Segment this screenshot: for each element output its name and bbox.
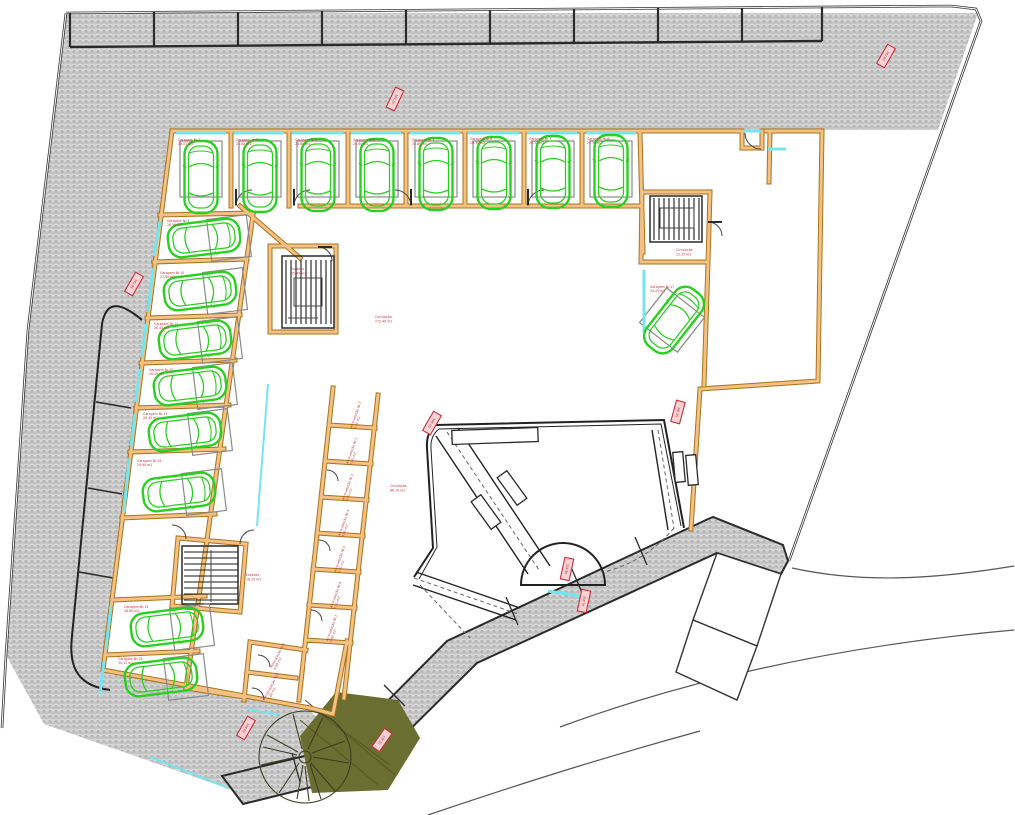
area-label: 26.50 m2 (167, 223, 182, 227)
car-icon (593, 135, 629, 207)
area-label: 24.80 m2 (295, 142, 310, 146)
car-icon (242, 140, 278, 212)
room-label: Circulação (390, 484, 407, 488)
room-label: Circulação (676, 248, 693, 252)
car-icon (141, 470, 217, 515)
car-icon (638, 281, 711, 360)
area-label: 30.15 m2 (118, 661, 133, 665)
floor-plan-page: Garagem Nr.1 25.07 m2 Garagem Nr.2 24.80… (0, 0, 1015, 815)
area-label: 27.80 m2 (160, 275, 175, 279)
area-label: 15.40 m2 (291, 272, 306, 276)
area-label: 26.45 m2 (143, 416, 158, 420)
basement-parking-plan: Garagem Nr.1 25.07 m2 Garagem Nr.2 24.80… (0, 0, 1015, 815)
area-label: 16.20 m2 (246, 578, 261, 582)
car-icon (476, 137, 512, 209)
level-marker: 340.25 (671, 400, 685, 424)
car-icon (418, 138, 454, 210)
car-icon (183, 141, 219, 213)
ramp-grate (471, 495, 501, 530)
area-label: 86.10 m2 (390, 489, 405, 493)
level-marker: 338.90 (560, 557, 573, 580)
planting-bed (300, 692, 420, 793)
area-label: 272.40 m2 (375, 320, 392, 324)
area-label: 24.80 m2 (236, 142, 251, 146)
stairs-upper-left (282, 256, 334, 328)
area-label: 24.80 m2 (353, 142, 368, 146)
area-label: 24.80 m2 (412, 142, 427, 146)
car-icon (300, 139, 336, 211)
area-label: 28.60 m2 (124, 609, 139, 613)
ramp-grate (497, 471, 527, 506)
stairs-right (650, 196, 702, 242)
level-marker: 340.10 (423, 411, 442, 435)
room-label: Circulação (375, 315, 392, 319)
area-label: 12.35 m2 (676, 253, 691, 257)
ramp-grate (452, 428, 538, 445)
light-well (686, 455, 699, 486)
area-label: 34.20 m2 (650, 289, 665, 293)
area-label: 29.90 m2 (137, 463, 152, 467)
area-label: 25.07 m2 (178, 142, 193, 146)
area-label: 26.10 m2 (529, 141, 544, 145)
light-well (673, 452, 686, 483)
area-label: 26.10 m2 (470, 141, 485, 145)
area-label: 26.45 m2 (149, 372, 164, 376)
area-label: 26.45 m2 (154, 326, 169, 330)
car-icon (359, 139, 395, 211)
room-label: Escadas (246, 573, 259, 577)
room-label: Escadas (291, 267, 304, 271)
area-label: 27.35 m2 (587, 141, 602, 145)
